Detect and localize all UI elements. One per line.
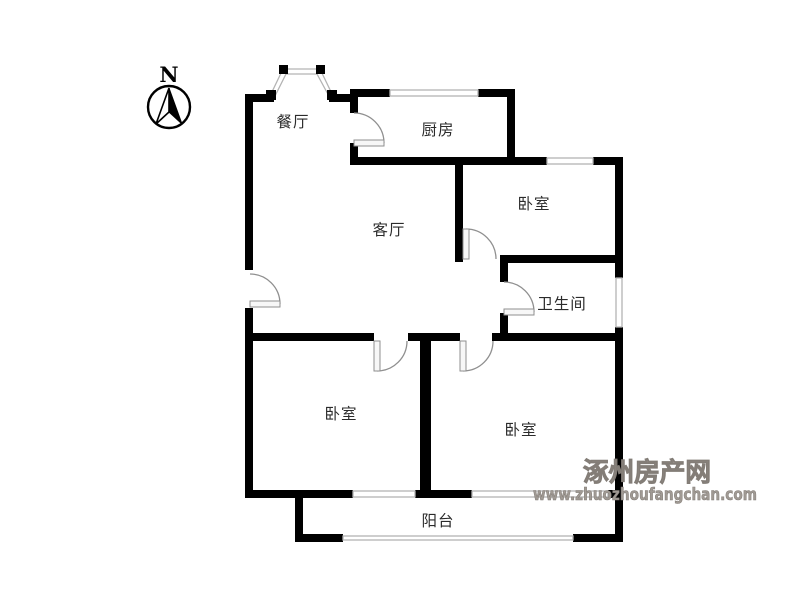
wall-kitchen-right (507, 89, 515, 165)
wall-right-lower (615, 327, 623, 542)
room-label-bathroom: 卫生间 (537, 295, 587, 313)
door-arc-entrance (250, 274, 280, 304)
wall-mid-right-bathroom-bottom (492, 333, 623, 341)
floorplan-canvas: N (0, 0, 800, 600)
door-leaf-bedroom-bl (374, 341, 380, 371)
wall-mid-left (245, 333, 374, 341)
bay-window (266, 65, 337, 100)
room-label-balcony: 阳台 (421, 512, 454, 530)
wall-balcony-left (295, 498, 303, 542)
window-bedroom-tr-top (547, 158, 593, 164)
north-compass-icon: N (148, 62, 190, 128)
window-bathroom-right (616, 278, 622, 327)
compass-north-label: N (159, 62, 178, 87)
wall-left-lower (245, 308, 253, 498)
walls (245, 89, 623, 542)
door-arc-bedroom-br (463, 341, 493, 371)
bay-window-inner-line (274, 74, 330, 98)
wall-kitchen-bottom (350, 157, 547, 165)
room-label-bedroom-bl: 卧室 (324, 405, 357, 423)
door-leaf-entrance (250, 301, 280, 307)
wall-bedroom-divider (420, 333, 431, 498)
wall-bottom-bl (245, 490, 353, 498)
window-bedroom-bl-bottom (353, 491, 415, 497)
door-leaf-bedroom-tr (463, 229, 469, 259)
watermark: 涿州房产网 www.zhuozhoufangchan.com (533, 458, 757, 505)
door-leaf-bedroom-br (460, 341, 466, 371)
wall-kitchen-left-upper (350, 89, 358, 113)
door-arc-bedroom-bl (377, 341, 407, 371)
wall-bathroom-left-lower (500, 313, 508, 341)
window-kitchen-top (390, 90, 478, 96)
door-leaf-kitchen (354, 140, 384, 146)
room-label-living: 客厅 (372, 221, 405, 239)
room-label-dining: 餐厅 (276, 113, 309, 131)
bay-window-cap-left (279, 65, 288, 74)
wall-bedroom-tr-left (455, 157, 463, 262)
wall-mid-center (408, 333, 460, 341)
watermark-site-url: www.zhuozhoufangchan.com (533, 485, 757, 505)
window-balcony-railing (343, 536, 573, 540)
door-arc-bedroom-tr (466, 229, 496, 259)
wall-bedroom-tr-bottom (500, 255, 623, 263)
bay-window-base-cap-right (327, 90, 337, 100)
room-label-kitchen: 厨房 (421, 121, 454, 139)
watermark-site-name: 涿州房产网 (583, 458, 711, 488)
room-label-bedroom-br: 卧室 (504, 421, 537, 439)
door-arc-bathroom (504, 282, 534, 312)
wall-left-upper (245, 94, 253, 270)
room-labels: 餐厅 厨房 卧室 客厅 卫生间 卧室 卧室 阳台 (276, 113, 586, 530)
floorplan-drawing: N (0, 0, 800, 600)
doors (250, 113, 534, 371)
door-arc-kitchen (354, 113, 384, 143)
door-leaf-bathroom (504, 309, 534, 315)
room-label-bedroom-tr: 卧室 (517, 195, 550, 213)
wall-right-upper (615, 157, 623, 278)
bay-window-base-cap-left (266, 90, 276, 100)
wall-bathroom-left-upper (500, 255, 508, 282)
bay-window-cap-right (316, 65, 325, 74)
